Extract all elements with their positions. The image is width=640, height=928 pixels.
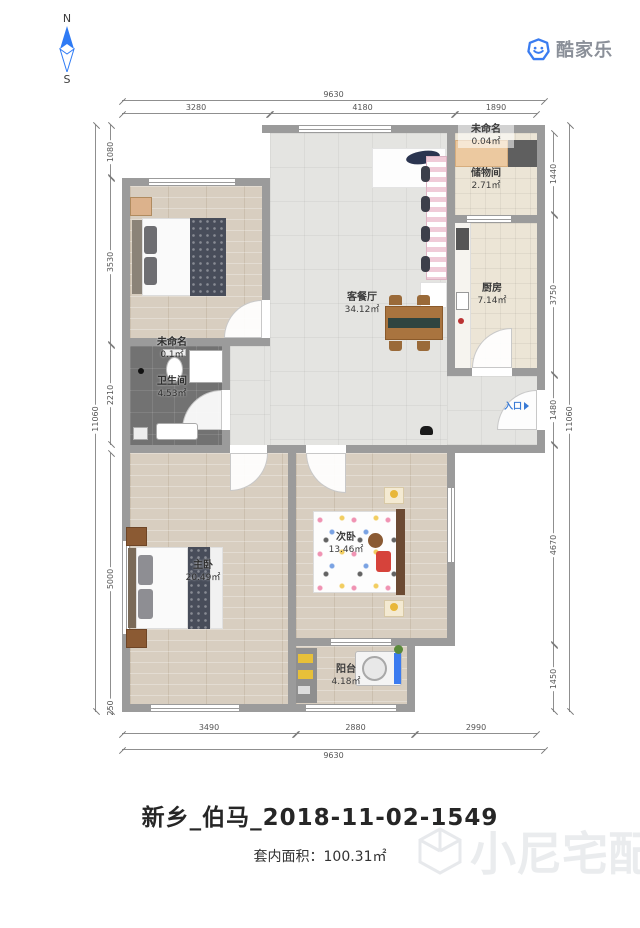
window-storage-bottom: [466, 215, 512, 223]
kujiale-logo-icon: [527, 38, 550, 61]
kitchen-item: [458, 318, 464, 324]
bed-headboard: [396, 509, 405, 595]
room-floor-passage: [230, 346, 270, 445]
floorplan-screen: N S 酷家乐: [0, 0, 640, 928]
cabinet-item: [298, 686, 310, 694]
compass-north-label: N: [52, 12, 82, 25]
dim-left-overall: 11060: [95, 125, 96, 712]
dining-chair: [389, 341, 402, 351]
entrance-label: 入口: [504, 399, 522, 412]
bed-pillow-red: [376, 551, 391, 572]
compass-south-label: S: [52, 73, 82, 86]
window-second-balcony: [330, 638, 392, 646]
pet-figure: [420, 426, 433, 435]
wall-kitchen-bottom-left: [447, 368, 472, 376]
window-bedroom-top: [148, 178, 236, 186]
bed-duvet: [190, 218, 226, 296]
dim-bottom-overall: 9630: [122, 749, 545, 750]
compass: N S: [52, 12, 82, 90]
plant: [394, 645, 403, 654]
dim-left-seg: 2210: [110, 345, 111, 445]
washer-panel: [394, 653, 401, 684]
wall-right-upper: [537, 125, 545, 390]
wall-bedroom-bottom: [122, 338, 270, 346]
nightstand: [130, 197, 152, 216]
window-balcony-bottom: [305, 704, 397, 712]
sofa-cushion: [421, 196, 430, 212]
wall-hall-bottom-a: [122, 445, 230, 453]
area-label: 套内面积：: [254, 849, 324, 865]
dim-right-seg: 3750: [553, 215, 554, 375]
dim-left-seg: 3530: [110, 178, 111, 345]
dim-bottom-seg: 3490: [122, 733, 296, 734]
plan-area-line: 套内面积：100.31㎡: [0, 846, 640, 866]
bed-pillow: [144, 257, 157, 285]
compass-arrow-icon: [59, 26, 75, 72]
room-label-master: 主卧 20.49㎡: [180, 560, 226, 584]
window-master-bottom: [150, 704, 240, 712]
bath-vanity: [156, 423, 198, 440]
bed-pillow: [144, 226, 157, 254]
room-label-storage: 储物间 2.71㎡: [462, 168, 510, 192]
sofa-cushion: [421, 226, 430, 242]
wall-hall-bottom-b: [267, 445, 306, 453]
dim-right-seg: 4670: [553, 445, 554, 645]
dim-top-seg: 1890: [455, 113, 537, 114]
dim-right-overall: 11060: [569, 125, 570, 712]
wall-living-kitchen: [447, 125, 455, 375]
app-logo: 酷家乐: [527, 36, 613, 62]
cabinet-item: [298, 670, 313, 679]
dim-bottom-seg: 2880: [296, 733, 415, 734]
bed-headboard: [132, 220, 142, 294]
logo-text: 酷家乐: [556, 36, 613, 62]
wall-bathroom-right-upper: [222, 338, 230, 390]
bed-pillow: [138, 589, 153, 619]
window-second-right: [447, 487, 455, 563]
sofa-cushion: [421, 166, 430, 182]
dim-top-overall: 9630: [122, 100, 545, 101]
window-living-top: [298, 125, 392, 133]
dim-right-seg: 1480: [553, 375, 554, 445]
dim-right-seg: 1450: [553, 645, 554, 712]
dim-bottom-seg: 2990: [415, 733, 537, 734]
dining-chair: [417, 341, 430, 351]
plan-title: 新乡_伯马_2018-11-02-1549: [0, 798, 640, 832]
floor-drain: [138, 368, 144, 374]
entrance-arrow-icon: [524, 402, 529, 410]
table-runner: [388, 318, 440, 328]
lamp: [390, 490, 398, 498]
dining-chair: [389, 295, 402, 305]
dim-right-seg: 1440: [553, 133, 554, 215]
room-label-living: 客餐厅 34.12㎡: [336, 292, 388, 316]
room-label-bathroom: 卫生间 4.53㎡: [146, 376, 198, 400]
lamp: [390, 603, 398, 611]
room-label-balcony: 阳台 4.18㎡: [318, 664, 374, 688]
area-value: 100.31㎡: [324, 849, 387, 865]
dining-chair: [417, 295, 430, 305]
room-label-second: 次卧 13.46㎡: [320, 532, 372, 556]
nightstand: [126, 629, 147, 648]
wall-hall-bottom-c: [346, 445, 545, 453]
dim-left-seg: 250: [110, 704, 111, 712]
wall-balcony-right: [407, 646, 415, 712]
stove: [456, 228, 469, 250]
entrance-marker: 入口: [504, 399, 529, 412]
dim-top-seg: 3280: [122, 113, 270, 114]
wall-kitchen-bottom-right: [512, 368, 545, 376]
wall-master-right: [288, 453, 296, 712]
sofa-cushion: [421, 256, 430, 272]
bed-pillow: [138, 555, 153, 585]
nightstand: [126, 527, 147, 546]
room-label-unnamed-bath: 未命名 0.1㎡: [148, 337, 196, 361]
cabinet-item: [298, 654, 313, 663]
room-label-unnamed-top: 未命名 0.04㎡: [458, 124, 514, 148]
wall-bedroom-right: [262, 178, 270, 300]
dim-left-seg: 1080: [110, 125, 111, 178]
bath-basin: [133, 427, 148, 440]
room-label-kitchen: 厨房 7.14㎡: [468, 283, 516, 307]
dim-left-seg: 5000: [110, 453, 111, 704]
dim-top-seg: 4180: [270, 113, 455, 114]
